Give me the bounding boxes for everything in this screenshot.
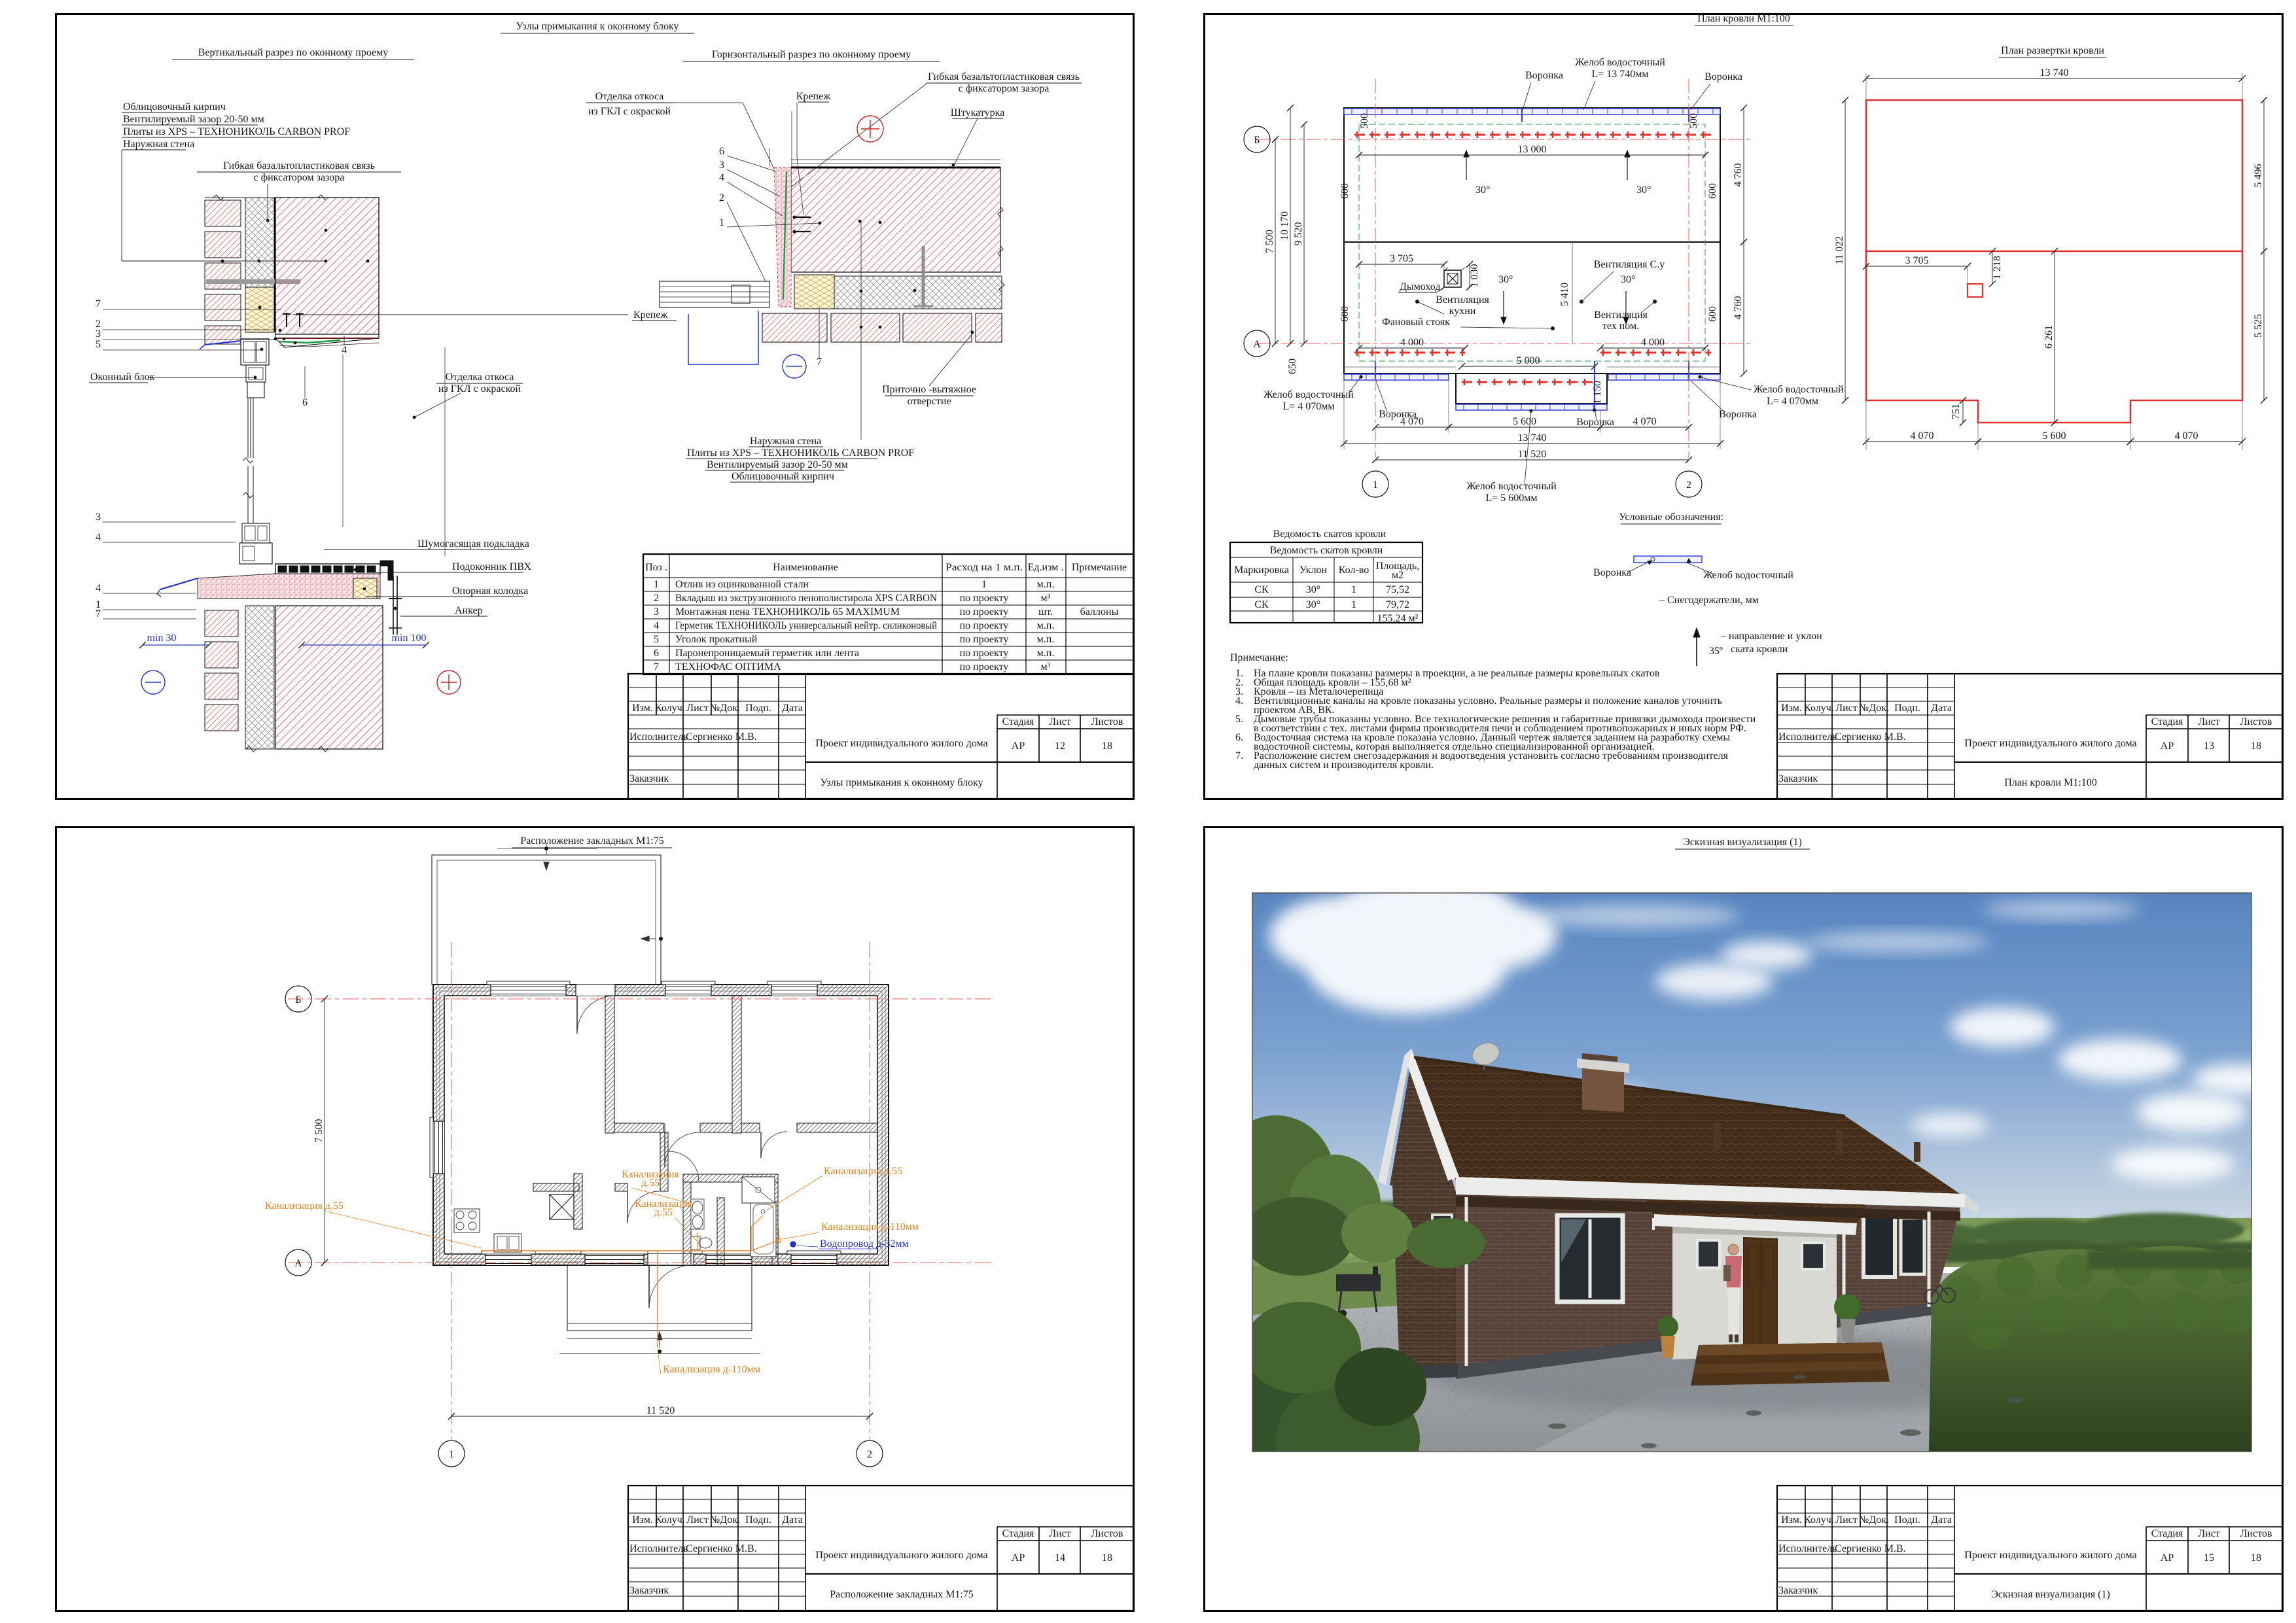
svg-text:15: 15 [2204, 1552, 2214, 1563]
svg-text:Условные обозначения:: Условные обозначения: [1619, 512, 1723, 523]
svg-text:Колуч.: Колуч. [1804, 1514, 1834, 1526]
svg-text:Дата: Дата [1931, 1514, 1952, 1526]
svg-text:Воронка: Воронка [1704, 71, 1742, 82]
svg-text:Вкладыш из экструзионного пено: Вкладыш из экструзионного пенополистирол… [675, 593, 937, 604]
svg-text:Воронка: Воронка [1719, 409, 1757, 420]
svg-text:Вентилируемый зазор 20-50 мм: Вентилируемый зазор 20-50 мм [123, 114, 264, 125]
svg-text:30°: 30° [1475, 184, 1490, 196]
svg-text:600: 600 [1707, 306, 1718, 322]
svg-text:500: 500 [1688, 113, 1699, 129]
svg-text:5 525: 5 525 [2253, 314, 2264, 338]
svg-text:Заказчик: Заказчик [1778, 773, 1818, 784]
svg-text:м³: м³ [1041, 593, 1051, 604]
svg-text:Гибкая базальтопластиковая свя: Гибкая базальтопластиковая связь [223, 160, 375, 171]
svg-text:Воронка: Воронка [1525, 70, 1563, 81]
svg-text:Узлы примыкания к оконному бло: Узлы примыкания к оконному блоку [820, 777, 983, 788]
svg-text:Наименование: Наименование [773, 562, 838, 573]
svg-text:5 410: 5 410 [1559, 283, 1570, 306]
svg-text:18: 18 [1102, 1552, 1112, 1563]
svg-text:4 070: 4 070 [1911, 430, 1934, 442]
svg-text:Вентиляция: Вентиляция [1594, 309, 1648, 321]
svg-text:3 705: 3 705 [1390, 253, 1413, 264]
svg-text:по проекту: по проекту [960, 634, 1009, 645]
svg-text:Изм.: Изм. [632, 703, 653, 714]
svg-text:Подп.: Подп. [1894, 703, 1920, 714]
svg-text:12: 12 [1055, 741, 1065, 752]
svg-text:СК: СК [1254, 584, 1269, 595]
svg-text:1 218: 1 218 [1992, 256, 2003, 279]
svg-text:7: 7 [96, 298, 101, 309]
svg-text:м³: м³ [1041, 661, 1051, 672]
svg-text:Изм.: Изм. [1781, 1514, 1802, 1526]
svg-text:Дата: Дата [782, 1514, 803, 1526]
svg-text:Стадия: Стадия [1002, 716, 1034, 727]
svg-text:Уклон: Уклон [1299, 565, 1328, 576]
svg-text:3: 3 [96, 328, 101, 340]
svg-text:План кровли М1:100: План кровли М1:100 [1697, 13, 1790, 24]
svg-text:5.: 5. [1235, 714, 1243, 725]
svg-text:751: 751 [1951, 404, 1962, 419]
svg-text:Заказчик: Заказчик [629, 773, 669, 784]
svg-text:Плиты из XPS – ТЕХНОНИКОЛЬ C: Плиты из XPS – ТЕХНОНИКОЛЬ CARBON PROF [687, 447, 914, 459]
svg-text:Ведомость скатов кровли: Ведомость скатов кровли [1273, 529, 1386, 540]
svg-text:Вентиляция: Вентиляция [1436, 294, 1489, 305]
svg-text:ТЕХНОФАС ОПТИМА: ТЕХНОФАС ОПТИМА [675, 661, 781, 672]
svg-text:Стадия: Стадия [2151, 1528, 2183, 1539]
svg-text:18: 18 [2251, 741, 2261, 752]
svg-text:Листов: Листов [1091, 1528, 1123, 1539]
svg-text:Колуч.: Колуч. [655, 703, 685, 714]
svg-text:Желоб водосточный: Желоб водосточный [1263, 389, 1354, 400]
svg-text:Лист: Лист [1835, 1514, 1858, 1526]
svg-text:АР: АР [1012, 741, 1025, 752]
svg-text:Лист: Лист [2198, 1528, 2220, 1539]
svg-text:5 000: 5 000 [1517, 355, 1540, 366]
svg-text:4: 4 [342, 345, 347, 356]
svg-text:600: 600 [1339, 306, 1351, 322]
svg-text:Примечание:: Примечание: [1230, 652, 1288, 663]
svg-text:6 261: 6 261 [2043, 325, 2055, 349]
svg-text:с фиксатором зазора: с фиксатором зазора [959, 83, 1050, 94]
svg-text:7.: 7. [1235, 750, 1243, 761]
svg-text:1: 1 [981, 579, 987, 590]
svg-text:4 070: 4 070 [1633, 416, 1657, 427]
svg-text:Изм.: Изм. [632, 1514, 653, 1526]
svg-text:Канализация д-110мм: Канализация д-110мм [821, 1221, 919, 1232]
svg-text:4 760: 4 760 [1733, 164, 1744, 187]
svg-text:м.п.: м.п. [1037, 634, 1055, 645]
svg-text:Монтажная пена ТЕХНОНИКОЛЬ 65: Монтажная пена ТЕХНОНИКОЛЬ 65 MAXIMUM [675, 606, 900, 618]
svg-text:35º: 35º [1709, 646, 1723, 657]
svg-text:Вертикальный разрез по оконном: Вертикальный разрез по оконному проему [198, 47, 389, 58]
svg-text:Канализация д.55: Канализация д.55 [265, 1200, 344, 1212]
svg-text:отверстие: отверстие [907, 396, 951, 407]
svg-text:4.: 4. [1235, 695, 1243, 707]
svg-text:5 496: 5 496 [2253, 164, 2264, 188]
svg-text:Лист: Лист [1835, 703, 1858, 714]
svg-text:7 500: 7 500 [313, 1119, 325, 1143]
svg-text:Стадия: Стадия [1002, 1528, 1034, 1539]
svg-text:Водопровод д-32мм: Водопровод д-32мм [820, 1238, 909, 1249]
svg-text:7 500: 7 500 [1264, 230, 1275, 253]
svg-text:11 520: 11 520 [646, 1405, 675, 1416]
svg-text:с фиксатором зазора: с фиксатором зазора [254, 172, 345, 183]
svg-text:ската кровли: ската кровли [1731, 644, 1788, 655]
svg-text:7: 7 [96, 608, 101, 620]
svg-text:4: 4 [719, 172, 724, 183]
svg-text:9 520: 9 520 [1293, 222, 1304, 246]
svg-text:5: 5 [654, 634, 659, 645]
svg-text:650: 650 [1287, 358, 1298, 374]
svg-text:№Док.: №Док. [710, 703, 740, 714]
svg-text:Опорная колодка: Опорная колодка [452, 585, 528, 597]
svg-text:по проекту: по проекту [960, 593, 1009, 604]
svg-text:м2: м2 [1392, 570, 1404, 581]
svg-text:Узлы примыкания к оконному бло: Узлы примыкания к оконному блоку [516, 21, 679, 32]
svg-text:18: 18 [2251, 1552, 2261, 1563]
svg-text:30°: 30° [1621, 274, 1635, 285]
svg-text:АР: АР [2161, 1552, 2174, 1563]
svg-text:Желоб водосточный: Желоб водосточный [1466, 481, 1557, 492]
svg-text:Воронка: Воронка [1576, 417, 1614, 428]
svg-text:Дата: Дата [782, 703, 803, 714]
svg-text:Ведомость скатов кровли: Ведомость скатов кровли [1270, 545, 1383, 556]
svg-text:Расположение закладных М1:75: Расположение закладных М1:75 [520, 835, 664, 846]
svg-text:L= 4 070мм: L= 4 070мм [1767, 396, 1818, 407]
svg-text:600: 600 [1339, 183, 1351, 199]
svg-text:по проекту: по проекту [960, 648, 1009, 659]
svg-text:Штукатурка: Штукатурка [951, 107, 1005, 118]
svg-text:30°: 30° [1498, 274, 1513, 285]
svg-text:Шумогасящая подкладка: Шумогасящая подкладка [417, 538, 529, 550]
svg-text:Заказчик: Заказчик [1778, 1585, 1818, 1596]
svg-text:Изм.: Изм. [1781, 703, 1802, 714]
svg-text:м.п.: м.п. [1037, 620, 1055, 631]
svg-text:из ГКЛ с окраской: из ГКЛ с окраской [438, 383, 521, 394]
svg-text:Б: Б [1254, 135, 1260, 146]
svg-text:Желоб водосточный: Желоб водосточный [1754, 384, 1844, 395]
svg-text:по проекту: по проекту [960, 661, 1009, 672]
svg-text:4: 4 [96, 532, 101, 543]
svg-text:Плиты из XPS – ТЕХНОНИКОЛЬ C: Плиты из XPS – ТЕХНОНИКОЛЬ CARBON PROF [123, 126, 350, 137]
svg-text:Заказчик: Заказчик [629, 1585, 669, 1596]
svg-text:Паронепроницаемый герметик или: Паронепроницаемый герметик или лента [675, 648, 859, 659]
svg-text:Лист: Лист [1049, 1528, 1071, 1539]
svg-text:18: 18 [1102, 741, 1112, 752]
svg-text:Уголок прокатный: Уголок прокатный [675, 634, 758, 645]
svg-text:6: 6 [719, 146, 724, 157]
svg-text:Исполнитель: Исполнитель [629, 1543, 688, 1554]
svg-text:6.: 6. [1235, 732, 1243, 743]
svg-text:баллоны: баллоны [1080, 606, 1119, 618]
svg-text:А: А [1253, 339, 1261, 350]
svg-text:30°: 30° [1306, 599, 1320, 610]
svg-text:АР: АР [1012, 1552, 1025, 1563]
svg-text:Б: Б [295, 994, 301, 1005]
svg-text:Анкер: Анкер [455, 605, 483, 616]
svg-text:4 760: 4 760 [1733, 296, 1744, 320]
svg-text:Дымоход: Дымоход [1400, 281, 1440, 292]
svg-text:2: 2 [654, 593, 659, 604]
svg-text:L= 4 070мм: L= 4 070мм [1282, 401, 1334, 412]
svg-text:500: 500 [1359, 113, 1370, 129]
svg-text:1 150: 1 150 [1592, 381, 1603, 404]
svg-text:Лист: Лист [686, 703, 709, 714]
svg-text:Желоб водосточный: Желоб водосточный [1575, 57, 1665, 68]
svg-text:Исполнитель: Исполнитель [1778, 1543, 1837, 1554]
svg-text:м.п.: м.п. [1037, 579, 1055, 590]
svg-text:Гибкая базальтопластиковая свя: Гибкая базальтопластиковая связь [928, 71, 1080, 82]
svg-text:Лист: Лист [1049, 716, 1071, 727]
svg-text:14: 14 [1055, 1552, 1065, 1563]
svg-text:11 520: 11 520 [1518, 449, 1546, 460]
svg-text:3: 3 [96, 512, 101, 523]
svg-text:Расход на 1 м.п.: Расход на 1 м.п. [945, 562, 1023, 573]
svg-text:4 000: 4 000 [1641, 337, 1665, 348]
svg-text:13 740: 13 740 [2040, 67, 2069, 79]
svg-text:2: 2 [1686, 480, 1691, 491]
svg-text:Эскизная визуализация (1): Эскизная визуализация (1) [1683, 837, 1802, 848]
svg-text:Проект индивидуального жилого: Проект индивидуального жилого дома [1964, 738, 2136, 749]
svg-text:Поз .: Поз . [645, 562, 667, 573]
svg-text:Сергиенко М.В.: Сергиенко М.В. [686, 731, 757, 742]
svg-text:Проект индивидуального жилого: Проект индивидуального жилого дома [815, 738, 987, 749]
svg-text:Воронка: Воронка [1379, 409, 1417, 420]
svg-text:Канализация д.55: Канализация д.55 [824, 1166, 902, 1177]
svg-text:Крепеж: Крепеж [633, 309, 668, 321]
svg-text:План развертки кровли: План развертки кровли [2001, 45, 2104, 56]
svg-text:кухни: кухни [1449, 305, 1476, 317]
svg-text:План кровли М1:100: План кровли М1:100 [2004, 777, 2097, 788]
svg-text:L= 5 600мм: L= 5 600мм [1485, 493, 1537, 504]
svg-text:4: 4 [96, 583, 101, 594]
svg-text:Эскизная визуализация (1): Эскизная визуализация (1) [1991, 1589, 2110, 1600]
svg-text:Колуч.: Колуч. [655, 1514, 685, 1526]
svg-text:1: 1 [719, 217, 724, 228]
svg-text:Канализация д-110мм: Канализация д-110мм [663, 1364, 760, 1375]
svg-text:6: 6 [302, 397, 308, 408]
svg-text:Сергиенко М.В.: Сергиенко М.В. [1835, 1543, 1906, 1554]
svg-text:Листов: Листов [1091, 716, 1123, 727]
svg-text:79,72: 79,72 [1386, 599, 1409, 610]
svg-text:Сергиенко М.В.: Сергиенко М.В. [1835, 731, 1906, 742]
svg-text:Наружная стена: Наружная стена [123, 139, 194, 150]
svg-text:5 600: 5 600 [2043, 430, 2066, 442]
svg-text:2: 2 [719, 192, 724, 203]
svg-text:Кол-во: Кол-во [1339, 565, 1369, 576]
svg-text:4 000: 4 000 [1400, 337, 1424, 348]
svg-text:L= 13 740мм: L= 13 740мм [1591, 69, 1648, 80]
svg-text:155,24 м²: 155,24 м² [1377, 613, 1419, 624]
svg-text:Дата: Дата [1931, 703, 1952, 714]
svg-text:Ед.изм .: Ед.изм . [1028, 562, 1064, 573]
svg-text:Оконный блок: Оконный блок [90, 372, 155, 383]
svg-text:3: 3 [654, 606, 659, 618]
svg-text:Колуч.: Колуч. [1804, 703, 1834, 714]
svg-text:Примечание: Примечание [1072, 562, 1127, 573]
svg-text:Облицовочный кирпич: Облицовочный кирпич [123, 101, 226, 113]
svg-text:11 022: 11 022 [1834, 236, 1845, 264]
svg-text:600: 600 [1707, 183, 1718, 199]
svg-text:Исполнитель: Исполнитель [629, 731, 688, 742]
svg-text:5 600: 5 600 [1513, 416, 1536, 427]
svg-text:СК: СК [1254, 599, 1269, 610]
svg-text:10 170: 10 170 [1279, 211, 1290, 240]
svg-text:Подоконник ПВХ: Подоконник ПВХ [452, 561, 531, 572]
svg-text:Подп.: Подп. [1894, 1514, 1920, 1526]
svg-text:д.55: д.55 [641, 1178, 660, 1189]
svg-text:Лист: Лист [686, 1514, 709, 1526]
svg-text:Листов: Листов [2240, 716, 2272, 727]
svg-text:Крепеж: Крепеж [796, 91, 831, 102]
svg-text:5: 5 [96, 339, 101, 350]
svg-text:шт.: шт. [1038, 606, 1053, 618]
svg-text:данных систем и производителя: данных систем и производителя кровли. [1254, 759, 1434, 771]
svg-text:Отделка откоса: Отделка откоса [595, 91, 664, 102]
svg-text:д.55: д.55 [654, 1207, 673, 1218]
svg-text:13 740: 13 740 [1518, 432, 1547, 444]
svg-text:Стадия: Стадия [2151, 716, 2183, 727]
svg-text:по проекту: по проекту [960, 620, 1009, 631]
svg-text:Вентиляция С.у: Вентиляция С.у [1594, 259, 1665, 270]
svg-text:Листов: Листов [2240, 1528, 2272, 1539]
svg-text:Герметик ТЕХНОНИКОЛЬ универсал: Герметик ТЕХНОНИКОЛЬ универсальный нейтр… [675, 620, 937, 631]
svg-text:Расположение закладных М1:75: Расположение закладных М1:75 [830, 1589, 974, 1600]
svg-text:min 30: min 30 [147, 633, 177, 644]
svg-text:А: А [294, 1258, 302, 1269]
svg-text:75,52: 75,52 [1386, 584, 1409, 595]
svg-text:Отлив из оцинкованной стали: Отлив из оцинкованной стали [675, 579, 809, 590]
svg-text:1: 1 [1351, 599, 1356, 610]
svg-text:4: 4 [654, 620, 659, 631]
svg-text:Проект индивидуального жилого: Проект индивидуального жилого дома [815, 1550, 987, 1561]
svg-text:1 030: 1 030 [1469, 264, 1480, 288]
svg-text:Исполнитель: Исполнитель [1778, 731, 1837, 742]
svg-text:Проект индивидуального жилого: Проект индивидуального жилого дома [1964, 1550, 2136, 1561]
svg-text:1: 1 [449, 1449, 454, 1460]
svg-text:3 705: 3 705 [1905, 255, 1929, 266]
svg-text:7: 7 [654, 661, 659, 672]
svg-text:№Док.: №Док. [1859, 703, 1889, 714]
svg-text:– направление и уклон: – направление и уклон [1720, 631, 1822, 642]
svg-text:1: 1 [1373, 480, 1378, 491]
svg-text:Желоб водосточный: Желоб водосточный [1703, 570, 1793, 581]
svg-text:м.п.: м.п. [1037, 648, 1055, 659]
svg-text:Горизонтальный разрез по оконн: Горизонтальный разрез по оконному проему [712, 49, 911, 60]
svg-text:Фановый стояк: Фановый стояк [1382, 317, 1450, 328]
svg-text:13 000: 13 000 [1518, 144, 1547, 155]
svg-text:4 070: 4 070 [2175, 430, 2199, 442]
svg-text:Маркировка: Маркировка [1234, 565, 1289, 576]
svg-text:30°: 30° [1636, 184, 1651, 196]
svg-text:3: 3 [719, 160, 724, 171]
svg-text:Подп.: Подп. [745, 1514, 771, 1526]
svg-text:Отделка откоса: Отделка откоса [446, 372, 514, 383]
svg-text:№Док.: №Док. [1859, 1514, 1889, 1526]
svg-text:30°: 30° [1306, 584, 1320, 595]
svg-text:2: 2 [867, 1449, 872, 1460]
svg-text:min 100: min 100 [392, 633, 427, 644]
svg-text:Подп.: Подп. [745, 703, 771, 714]
svg-text:Вентилируемый зазор 20-50 мм: Вентилируемый зазор 20-50 мм [707, 459, 848, 470]
svg-text:Воронка: Воронка [1593, 567, 1631, 578]
svg-text:1: 1 [654, 579, 659, 590]
svg-text:из ГКЛ с окраской: из ГКЛ с окраской [588, 106, 671, 117]
svg-text:13: 13 [2204, 741, 2214, 752]
svg-text:Облицовочный кирпич: Облицовочный кирпич [732, 471, 834, 482]
svg-text:по проекту: по проекту [960, 606, 1009, 618]
svg-text:Наружная стена: Наружная стена [750, 436, 821, 447]
svg-text:Лист: Лист [2198, 716, 2220, 727]
svg-text:№Док.: №Док. [710, 1514, 740, 1526]
svg-text:АР: АР [2161, 741, 2174, 752]
svg-text:Сергиенко М.В.: Сергиенко М.В. [686, 1543, 757, 1554]
svg-text:6: 6 [654, 648, 659, 659]
svg-text:1: 1 [1351, 584, 1356, 595]
svg-text:тех пом.: тех пом. [1602, 321, 1639, 332]
svg-text:– Снегодержатели, мм: – Снегодержатели, мм [1659, 595, 1759, 606]
